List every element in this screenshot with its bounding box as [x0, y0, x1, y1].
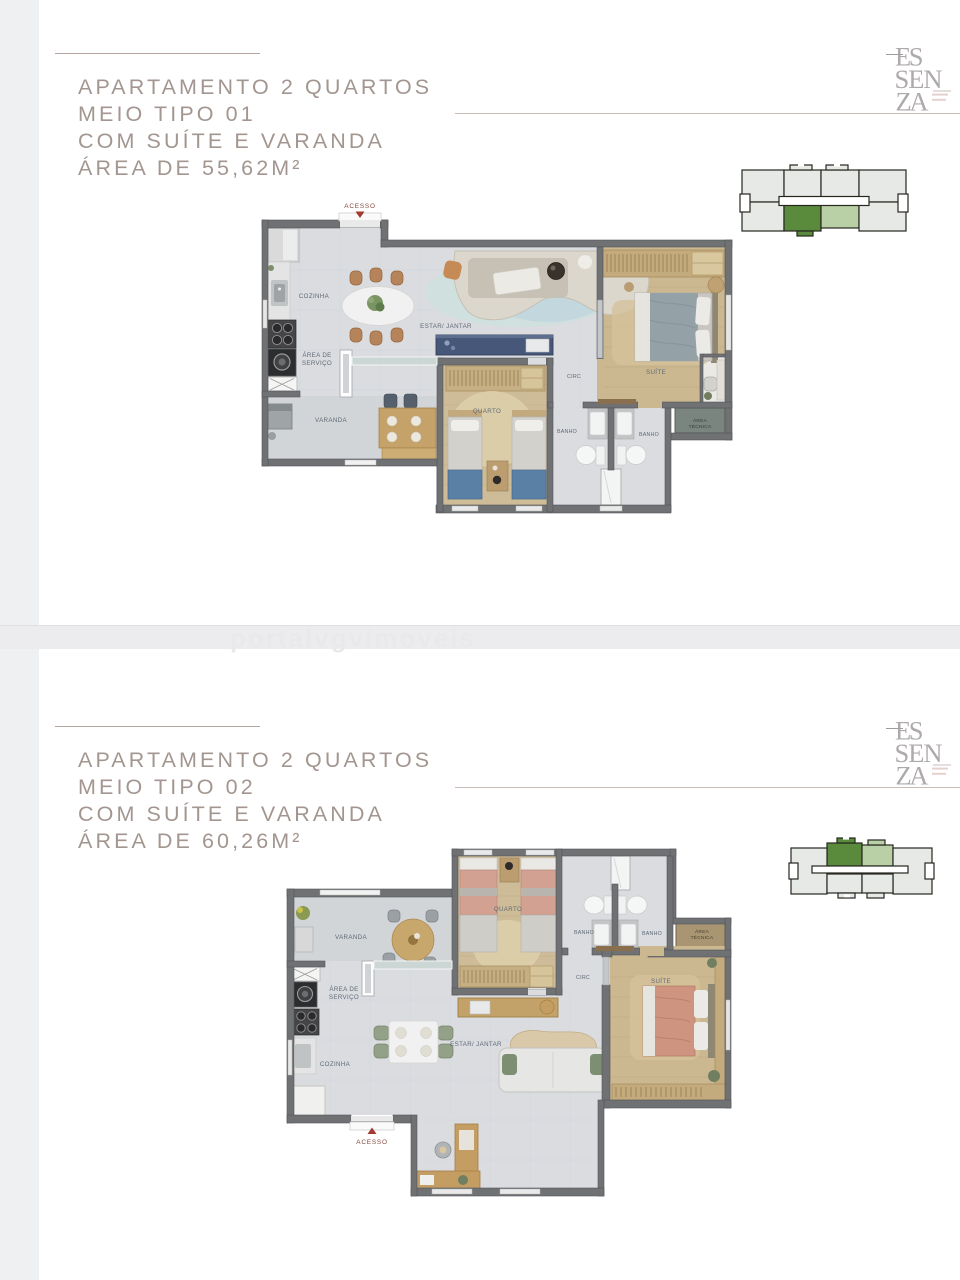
- svg-text:CIRC: CIRC: [576, 975, 590, 981]
- svg-text:SUÍTE: SUÍTE: [651, 978, 671, 985]
- svg-text:ÁREA: ÁREA: [695, 928, 710, 935]
- svg-text:SUÍTE: SUÍTE: [646, 369, 666, 376]
- svg-text:ÁREA DE: ÁREA DE: [329, 986, 358, 993]
- svg-text:BANHO: BANHO: [557, 429, 577, 435]
- svg-text:COZINHA: COZINHA: [299, 293, 330, 300]
- svg-text:TÉCNICA: TÉCNICA: [689, 423, 712, 430]
- svg-text:TÉCNICA: TÉCNICA: [691, 934, 714, 941]
- svg-text:BANHO: BANHO: [639, 432, 659, 438]
- svg-text:ZA: ZA: [896, 87, 929, 116]
- svg-text:VARANDA: VARANDA: [335, 934, 367, 941]
- svg-text:SERVIÇO: SERVIÇO: [302, 360, 332, 367]
- svg-text:VARANDA: VARANDA: [315, 417, 347, 424]
- svg-text:ACESSO: ACESSO: [344, 203, 375, 210]
- svg-text:ZA: ZA: [896, 761, 929, 790]
- svg-text:QUARTO: QUARTO: [494, 906, 522, 913]
- svg-text:COZINHA: COZINHA: [320, 1061, 351, 1068]
- svg-text:ACESSO: ACESSO: [356, 1139, 387, 1146]
- svg-text:ÁREA DE: ÁREA DE: [302, 352, 331, 359]
- svg-text:ESTAR/ JANTAR: ESTAR/ JANTAR: [420, 323, 472, 330]
- svg-text:SERVIÇO: SERVIÇO: [329, 994, 359, 1001]
- svg-text:QUARTO: QUARTO: [473, 408, 501, 415]
- svg-text:ESTAR/ JANTAR: ESTAR/ JANTAR: [450, 1041, 502, 1048]
- svg-text:ÁREA: ÁREA: [693, 417, 708, 424]
- svg-text:CIRC: CIRC: [567, 374, 581, 380]
- svg-text:BANHO: BANHO: [574, 930, 594, 936]
- svg-text:BANHO: BANHO: [642, 931, 662, 937]
